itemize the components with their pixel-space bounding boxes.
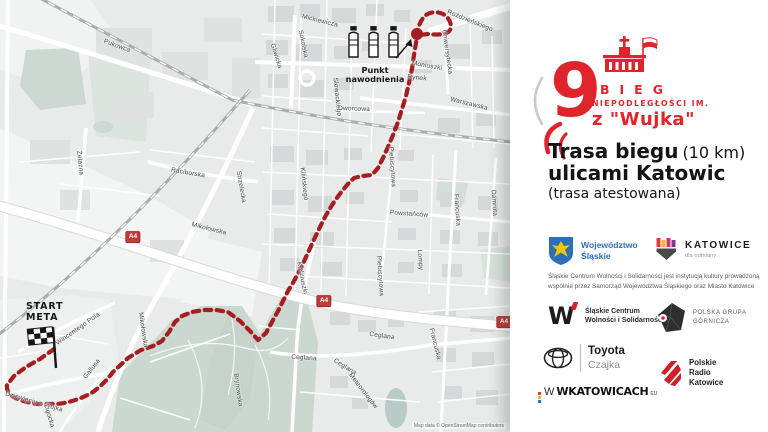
slaskie-eagle-shield-icon	[548, 236, 574, 266]
confetti-icon	[538, 392, 541, 403]
czajka-text: Czajka	[588, 359, 625, 372]
logo-line-bieg: BIEG	[600, 82, 673, 97]
radio-text-3: Katowice	[689, 378, 723, 388]
start-finish-marker: START META	[20, 302, 90, 377]
scws-text-1: Śląskie Centrum	[585, 307, 664, 316]
radio-text-1: Polskie	[689, 358, 723, 368]
katowice-tagline: dla odmiany	[685, 253, 751, 259]
logo-pgg: POLSKA GRUPA GÓRNICZA	[658, 303, 746, 333]
logo-wkatowicach: W WKATOWICACH EU	[538, 385, 657, 403]
scws-w-icon: W	[548, 303, 578, 329]
toyota-icon	[543, 347, 573, 369]
map-attribution: Map data © OpenStreetMap contributors	[412, 423, 506, 429]
start-finish-label: START META	[20, 302, 90, 324]
event-route-poster: PukowcaMickiewiczaSokolskaGliwickaRoździ…	[0, 0, 768, 432]
radio-text-2: Radio	[689, 368, 723, 378]
checkered-flag-icon	[20, 324, 62, 372]
katowice-text: KATOWICE	[685, 241, 751, 251]
slaskie-text-1: Województwo	[581, 240, 638, 251]
logo-katowice: KATOWICE dla odmiany	[655, 238, 751, 261]
logo-polskie-radio-katowice: Polskie Radio Katowice	[660, 358, 723, 388]
title-distance: (10 km)	[682, 143, 745, 162]
pgg-text-2: GÓRNICZA	[693, 318, 746, 327]
pgg-coal-icon	[658, 303, 686, 333]
route-title: Trasa biegu(10 km) ulicami Katowic (tras…	[548, 140, 763, 202]
title-certified: (trasa atestowana)	[548, 187, 763, 203]
logo-line-niepodleglosci: NIEPODLEGŁOŚCI IM.	[592, 99, 709, 108]
water-point-label: Punkt nawodnienia	[332, 66, 418, 84]
logo-scws: W Śląskie Centrum Wolności i Solidarnośc…	[548, 303, 664, 329]
scws-text-2: Wolności i Solidarności	[585, 316, 664, 325]
slaskie-text-2: Śląskie	[581, 251, 638, 262]
wkat-eu: EU	[650, 391, 657, 397]
info-panel: 9 BIEG NIEPODLEGŁOŚCI IM. z "Wujka" Tra	[510, 0, 768, 432]
toyota-text: Toyota	[588, 345, 625, 359]
event-logo: 9 BIEG NIEPODLEGŁOŚCI IM. z "Wujka"	[510, 22, 768, 130]
route-map: PukowcaMickiewiczaSokolskaGliwickaRoździ…	[0, 0, 510, 432]
pointer-arrow-icon	[394, 36, 416, 60]
divider	[580, 344, 581, 372]
title-bold-1: Trasa biegu	[548, 139, 678, 163]
logo-wojewodztwo-slaskie: Województwo Śląskie	[548, 236, 638, 266]
wkat-text: WKATOWICACH	[556, 385, 648, 398]
monument-flag-icon	[598, 36, 658, 78]
pgg-text-1: POLSKA GRUPA	[693, 309, 746, 318]
title-bold-2: ulicami Katowic	[548, 162, 763, 184]
logo-toyota-czajka: Toyota Czajka	[543, 344, 625, 372]
katowice-heart-icon	[655, 238, 678, 261]
wkat-w: W	[544, 386, 554, 398]
radio-waves-icon	[660, 360, 682, 386]
logo-line-wujka: z "Wujka"	[592, 109, 695, 130]
institution-note: Śląskie Centrum Wolności i Solidarności …	[548, 272, 762, 291]
